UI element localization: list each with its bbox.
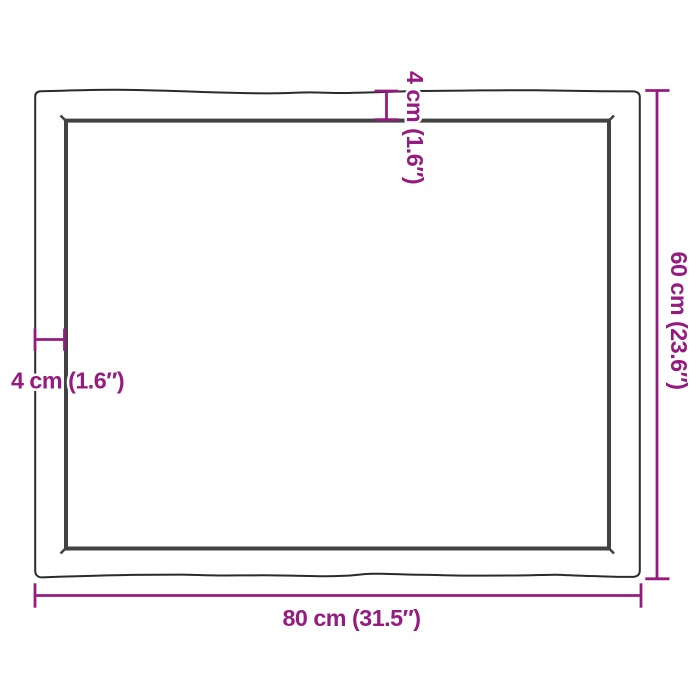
svg-text:80 cm (31.5″): 80 cm (31.5″) <box>282 605 420 631</box>
svg-text:60 cm (23.6″): 60 cm (23.6″) <box>666 252 692 390</box>
svg-text:4 cm (1.6″): 4 cm (1.6″) <box>11 368 124 394</box>
svg-text:4 cm (1.6″): 4 cm (1.6″) <box>402 71 428 184</box>
